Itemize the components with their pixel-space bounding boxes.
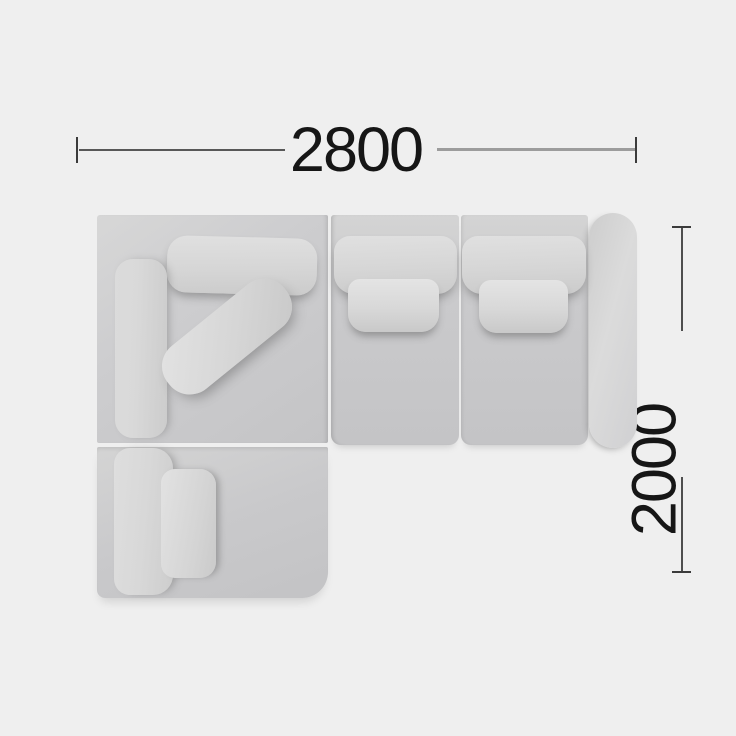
sofa-dimension-diagram: 2800 2000 (0, 0, 736, 736)
width-dimension-label: 2800 (280, 119, 432, 182)
width-dimension-left-tick (76, 137, 78, 163)
depth-dimension-bottom-line (681, 477, 683, 572)
middle-lumbar-pillow (348, 279, 439, 332)
right-lumbar-pillow (479, 280, 568, 333)
width-dimension-left-line (79, 149, 285, 151)
depth-dimension-top-line (681, 228, 683, 331)
width-dimension-right-line (437, 148, 635, 151)
left-side-back-cushion (115, 259, 167, 438)
chaise-lumbar-pillow (161, 469, 216, 578)
sofa-right-armrest (589, 213, 637, 448)
depth-dimension-bottom-tick (672, 571, 691, 573)
corner-back-cushion (166, 235, 317, 296)
width-dimension-right-tick (635, 137, 637, 163)
